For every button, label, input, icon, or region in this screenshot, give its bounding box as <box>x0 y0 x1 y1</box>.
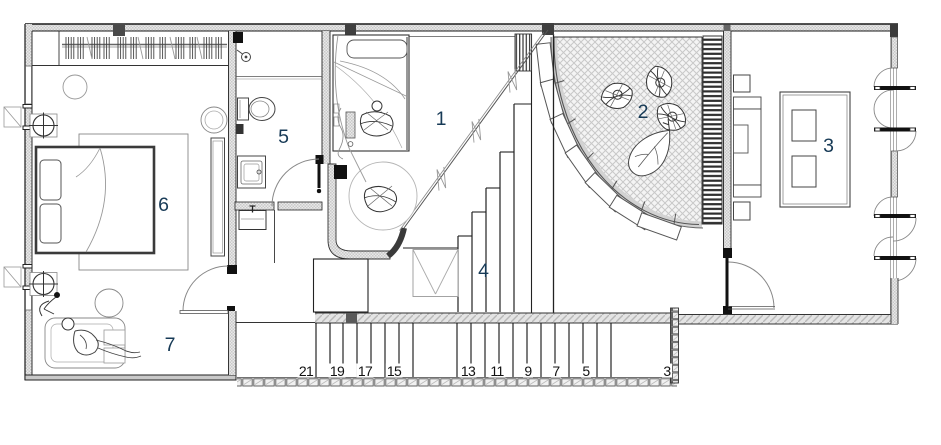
svg-text:2: 2 <box>638 101 649 123</box>
svg-text:21: 21 <box>299 363 314 379</box>
svg-text:19: 19 <box>330 363 345 379</box>
svg-text:7: 7 <box>165 334 176 356</box>
svg-text:15: 15 <box>387 363 402 379</box>
svg-text:7: 7 <box>552 363 560 379</box>
svg-text:3: 3 <box>823 135 834 157</box>
svg-text:11: 11 <box>490 363 504 379</box>
svg-text:13: 13 <box>461 363 476 379</box>
svg-text:9: 9 <box>524 363 532 379</box>
svg-text:6: 6 <box>158 194 169 216</box>
svg-text:5: 5 <box>278 126 289 148</box>
svg-text:3: 3 <box>663 363 671 379</box>
svg-text:1: 1 <box>436 108 447 130</box>
svg-text:5: 5 <box>582 363 590 379</box>
svg-text:4: 4 <box>478 260 489 282</box>
svg-text:17: 17 <box>358 363 373 379</box>
